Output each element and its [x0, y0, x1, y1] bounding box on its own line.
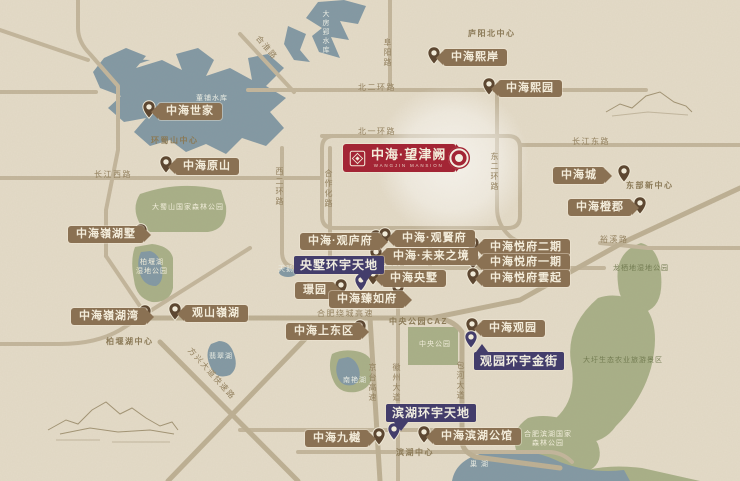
property-badge: 中海熙岸	[443, 49, 507, 66]
main-project-subtitle: WANGJIN MANSION	[374, 163, 444, 168]
main-project-name: 中海·望津阙	[371, 148, 446, 161]
road-label: 徽州大道	[392, 363, 400, 403]
water-label: 南艳湖	[343, 377, 367, 384]
commercial-badge: 央墅环宇天地	[294, 256, 384, 274]
main-project-target-marker	[447, 146, 471, 175]
property-badge: 中海嶺湖湾	[71, 308, 147, 325]
road-label: 西二环路	[275, 167, 283, 207]
district-label: 滨湖中心	[396, 449, 434, 457]
property-badge: 中海滨湖公馆	[433, 428, 521, 445]
commercial-badge: 观园环宇金街	[474, 352, 564, 370]
property-badge: 中海央墅	[382, 270, 446, 287]
road-label: 长江东路	[572, 138, 610, 146]
park-label: 大圩生态农业旅游景区	[583, 356, 663, 365]
park-label: 柏堰湖湿地公园	[136, 258, 168, 277]
road-label: 东二环路	[490, 152, 498, 192]
road-label: 阜阳路	[383, 38, 391, 68]
property-badge: 中海九樾	[305, 430, 369, 447]
property-badge: 中海城	[553, 167, 605, 184]
water-label: 大房郢水库	[322, 10, 329, 55]
district-label: 柏堰湖中心	[106, 338, 154, 346]
property-badge: 中海嶺湖墅	[68, 226, 144, 243]
property-pin	[617, 164, 631, 183]
road-label: 京台高速	[368, 363, 376, 403]
road-label: 长江西路	[94, 171, 132, 179]
property-badge: 观山嶺湖	[184, 305, 248, 322]
ornament-icon	[349, 150, 366, 167]
park-label: 大蜀山国家森林公园	[152, 203, 224, 212]
property-badge: 中海臻如府	[329, 291, 405, 308]
park-label: 合肥滨湖国家森林公园	[524, 430, 572, 449]
district-label: 庐阳北中心	[468, 30, 516, 38]
park-label: 中央公园	[419, 340, 451, 349]
water-label: 巢 湖	[470, 461, 489, 468]
district-label: 环蜀山中心	[151, 137, 199, 145]
property-badge: 中海观园	[481, 320, 545, 337]
water-label: 董铺水库	[196, 95, 228, 102]
water-label: 翡翠湖	[209, 353, 233, 360]
district-label: 东部新中心	[626, 182, 674, 190]
property-badge: 中海橙郡	[568, 199, 632, 216]
property-badge: 中海上东区	[286, 323, 362, 340]
commercial-badge: 滨湖环宇天地	[386, 404, 476, 422]
property-badge: 中海·观賢府	[394, 230, 475, 247]
road-label: 北一环路	[358, 128, 396, 136]
property-badge: 中海·未来之境	[385, 248, 478, 265]
main-project-badge: 中海·望津阙 WANGJIN MANSION	[343, 144, 456, 172]
road-label: 裕溪路	[600, 236, 629, 244]
property-badge: 中海悦府雲起	[482, 270, 570, 287]
road-label: 合作化路	[324, 169, 332, 209]
road-label: 包河大道	[456, 361, 464, 401]
property-badge: 中海悦府一期	[482, 254, 570, 271]
district-label: 中央公园CAZ	[389, 318, 448, 326]
road-label: 合肥绕城高速	[317, 310, 374, 318]
property-badge: 中海世家	[158, 103, 222, 120]
road-label: 北二环路	[358, 84, 396, 92]
park-label: 龙栖地湿地公园	[613, 264, 669, 273]
property-badge: 中海熙园	[498, 80, 562, 97]
property-badge: 中海原山	[175, 158, 239, 175]
location-map: 合淮路北二环路北一环路阜阳路东二环路西二环路合作化路长江西路长江东路南二环路合肥…	[0, 0, 740, 481]
property-badge: 中海·观庐府	[300, 233, 381, 250]
